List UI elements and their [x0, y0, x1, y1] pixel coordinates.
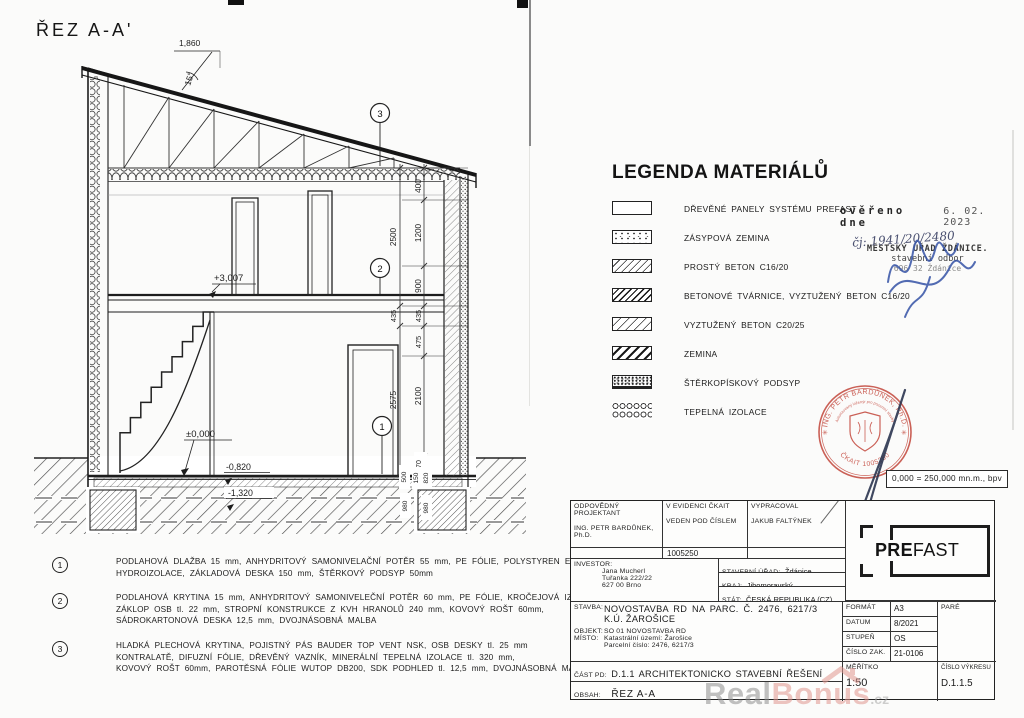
svg-text:2100: 2100: [414, 386, 423, 405]
note-number: 3: [52, 641, 68, 657]
format-label: FORMÁT: [843, 601, 891, 616]
svg-text:400: 400: [414, 179, 423, 193]
roof-angle-annotation: 1,860 15°: [174, 38, 220, 90]
svg-text:820: 820: [423, 472, 430, 483]
legend-title: LEGENDA MATERIÁLŮ: [612, 162, 1012, 184]
legend-swatch-soil: [612, 346, 652, 360]
logo-bracket-icon: [860, 564, 873, 577]
scan-smudge: [228, 0, 244, 5]
level-upper: +3,007: [214, 273, 243, 284]
roof-top-dim: 1,860: [179, 38, 201, 48]
project-cell: STAVBA: NOVOSTAVBA RD NA PARC. Č. 2476, …: [571, 601, 843, 661]
svg-text:2575: 2575: [389, 390, 398, 409]
drawing-sheet: ŘEZ A-A': [0, 0, 1024, 718]
callout-2: 2: [377, 264, 382, 275]
job-number-label: ČÍSLO ZAK.: [843, 646, 891, 661]
drawing-number: D.1.1.5: [941, 678, 993, 689]
evidence-cell: V EVIDENCI ČKAIT VEDEN POD ČÍSLEM: [663, 501, 748, 547]
logo-bracket-icon: [860, 525, 873, 538]
building-office-cell: STAVEBNÍ ÚŘAD: Ždánice: [719, 558, 846, 572]
logo-cell: PREFAST: [846, 501, 996, 601]
responsible-cell: ODPOVĚDNÝ PROJEKTANT ING. PETR BARDŮNEK,…: [571, 501, 663, 547]
note-number: 2: [52, 593, 68, 609]
paper-edge-line: [1012, 130, 1014, 430]
elevation-reference: 0,000 = 250,000 mn.m., bpv: [886, 470, 1008, 488]
stage-value: OS: [891, 631, 938, 646]
note-2: 2 PODLAHOVÁ KRYTINA 15 mm, ANHYDRITOVÝ S…: [42, 592, 542, 627]
svg-text:500: 500: [401, 471, 408, 482]
region-cell: KRAJ: Jihomoravský: [719, 572, 846, 586]
level-minus132: -1,320: [228, 488, 253, 498]
scan-smudge: [517, 0, 528, 8]
job-number-value: 21-0106: [891, 646, 938, 661]
svg-text:1200: 1200: [414, 223, 423, 242]
upper-doors: [232, 191, 332, 295]
callout-1: 1: [379, 422, 384, 433]
legend-swatch-insulation: [612, 402, 652, 419]
svg-text:435: 435: [389, 310, 398, 322]
roof-angle: 15°: [182, 71, 195, 86]
sheet-content: ŘEZ A-A: [611, 689, 656, 700]
staircase: [120, 312, 214, 476]
composition-notes: 1 PODLAHOVÁ DLAŽBA 15 mm, ANHYDRITOVÝ SA…: [42, 556, 542, 688]
watermark-roof-icon: [820, 666, 862, 684]
state-cell: STÁT: ČESKÁ REPUBLIKA (CZ): [719, 586, 846, 601]
callout-3: 3: [377, 109, 382, 120]
legend-swatch-reinforced: [612, 317, 652, 331]
project-name: NOVOSTAVBA RD NA PARC. Č. 2476, 6217/3: [604, 604, 817, 614]
prepared-cell: VYPRACOVAL JAKUB FALTÝNEK: [748, 501, 846, 547]
svg-text:980: 980: [423, 502, 430, 513]
watermark: RealBonus.cz: [704, 676, 889, 712]
legend-swatch-plain-concrete: [612, 259, 652, 273]
level-minus082: -0,820: [226, 462, 251, 472]
prefast-logo: PREFAST: [860, 525, 992, 577]
legend-swatch-gravel: [612, 375, 652, 389]
legend-swatch-panels: [612, 201, 652, 215]
date-value: 8/2021: [891, 616, 938, 631]
format-value: A3: [891, 601, 938, 616]
stage-label: STUPEŇ: [843, 631, 891, 646]
legend-swatch-backfill: [612, 230, 652, 244]
svg-text:150: 150: [413, 472, 420, 483]
left-wall: [88, 68, 108, 487]
svg-text:475: 475: [414, 336, 423, 348]
investor-cell: INVESTOR: Jana Mucherl Tuřanka 222/22 62…: [571, 558, 719, 601]
svg-text:✳: ✳: [822, 429, 828, 437]
note-1: 1 PODLAHOVÁ DLAŽBA 15 mm, ANHYDRITOVÝ SA…: [42, 556, 542, 579]
svg-text:2500: 2500: [389, 227, 398, 246]
roof-truss: [108, 85, 460, 182]
svg-text:980: 980: [402, 500, 409, 511]
section-drawing: +3,007 ±0,000 -0,820 -1,320 1,860 15°: [24, 28, 536, 540]
drawing-number-cell: ČÍSLO VÝKRESU D.1.1.5: [938, 661, 996, 701]
svg-text:435: 435: [414, 310, 423, 322]
note-3: 3 HLADKÁ PLECHOVÁ KRYTINA, POJISTNÝ PÁS …: [42, 640, 542, 675]
evidence-number: 1005250: [663, 547, 748, 558]
signature: [850, 222, 1010, 322]
svg-text:900: 900: [414, 279, 423, 293]
legend-swatch-blocks: [612, 288, 652, 302]
level-zero: ±0,000: [186, 429, 215, 440]
pare-cell: PARÉ: [938, 601, 996, 661]
note-number: 1: [52, 557, 68, 573]
titleblock: ODPOVĚDNÝ PROJEKTANT ING. PETR BARDŮNEK,…: [570, 500, 995, 700]
date-label: DATUM: [843, 616, 891, 631]
right-wall: [444, 174, 468, 487]
floor-slab: [108, 295, 444, 312]
svg-text:✳: ✳: [901, 429, 907, 437]
legend-item: ZEMINA: [612, 345, 1012, 360]
